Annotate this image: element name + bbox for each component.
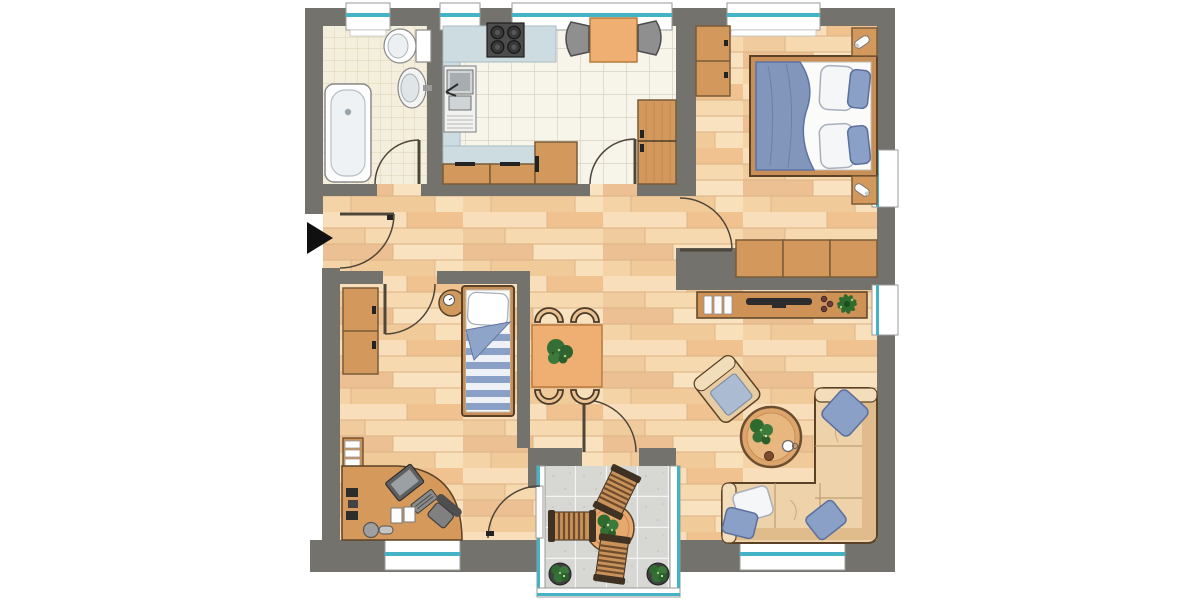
cooktop	[487, 23, 524, 57]
tall-cabinet	[638, 100, 676, 184]
basin-faucet	[423, 85, 432, 91]
tv-stand	[772, 305, 786, 308]
tv	[746, 298, 812, 305]
patio-chair-2	[548, 510, 596, 542]
kitchen-sink	[444, 66, 476, 132]
floor-plan-svg	[0, 0, 1200, 600]
potted-shrub-east	[647, 563, 669, 585]
desk-book-1	[391, 508, 402, 523]
single-bed	[462, 286, 514, 416]
book-3	[724, 296, 732, 314]
nightstand-south	[852, 176, 877, 204]
breakfast-table	[590, 18, 637, 62]
cup	[783, 441, 794, 452]
bathtub-drain	[345, 109, 351, 115]
bathtub	[325, 84, 371, 182]
child-pillow	[467, 292, 509, 326]
dining-table	[532, 325, 602, 387]
decor-bowl-2	[827, 301, 833, 307]
window-bedroom-top	[727, 3, 820, 36]
bedroom-wardrobe	[696, 26, 730, 96]
wall-bath-south-left	[322, 184, 377, 196]
coffee-table	[741, 407, 801, 467]
wall-children-east	[517, 271, 530, 448]
kitchen-chair-right	[638, 21, 661, 55]
book-2	[714, 296, 722, 314]
wall-bath-south-right	[421, 184, 427, 196]
toilet	[384, 29, 431, 63]
wall-bedroom-sw	[676, 248, 736, 290]
window-children-bottom	[385, 538, 460, 570]
potted-shrub-west	[549, 563, 571, 585]
window-bathroom	[346, 3, 390, 36]
kitchen-chair-left	[566, 22, 589, 56]
wall-dining-south-left	[542, 448, 582, 466]
railing-south-accent	[537, 593, 680, 596]
wall-kitchen-south-right	[637, 184, 676, 196]
children-wardrobe	[343, 288, 378, 374]
railing-east-accent	[677, 466, 680, 590]
double-bed	[750, 56, 877, 176]
coffee-table-bowl	[765, 452, 774, 461]
floor-plan-page	[0, 0, 1200, 600]
sideboard	[697, 292, 867, 318]
pillow-blue-1	[847, 69, 871, 109]
wall-left-upper	[305, 8, 323, 214]
window-living-right	[872, 285, 898, 335]
desk-book-2	[404, 507, 415, 522]
wall-kitchen-bedroom	[676, 26, 696, 196]
wall-children-north-left	[322, 271, 383, 284]
decor-bowl-3	[821, 306, 827, 312]
wall-dining-south-right	[639, 448, 676, 466]
wall-kitchen-south-left	[443, 184, 590, 196]
wall-bedroom-south	[736, 277, 877, 290]
closet-row	[736, 240, 877, 277]
decor-bowl-1	[821, 296, 827, 302]
wall-children-north-right	[437, 271, 530, 284]
book-1	[704, 296, 712, 314]
pillow-blue-2	[847, 125, 871, 165]
wall-left-lower	[322, 268, 340, 572]
blue-duvet	[756, 62, 814, 170]
nightstand-north	[852, 28, 877, 56]
